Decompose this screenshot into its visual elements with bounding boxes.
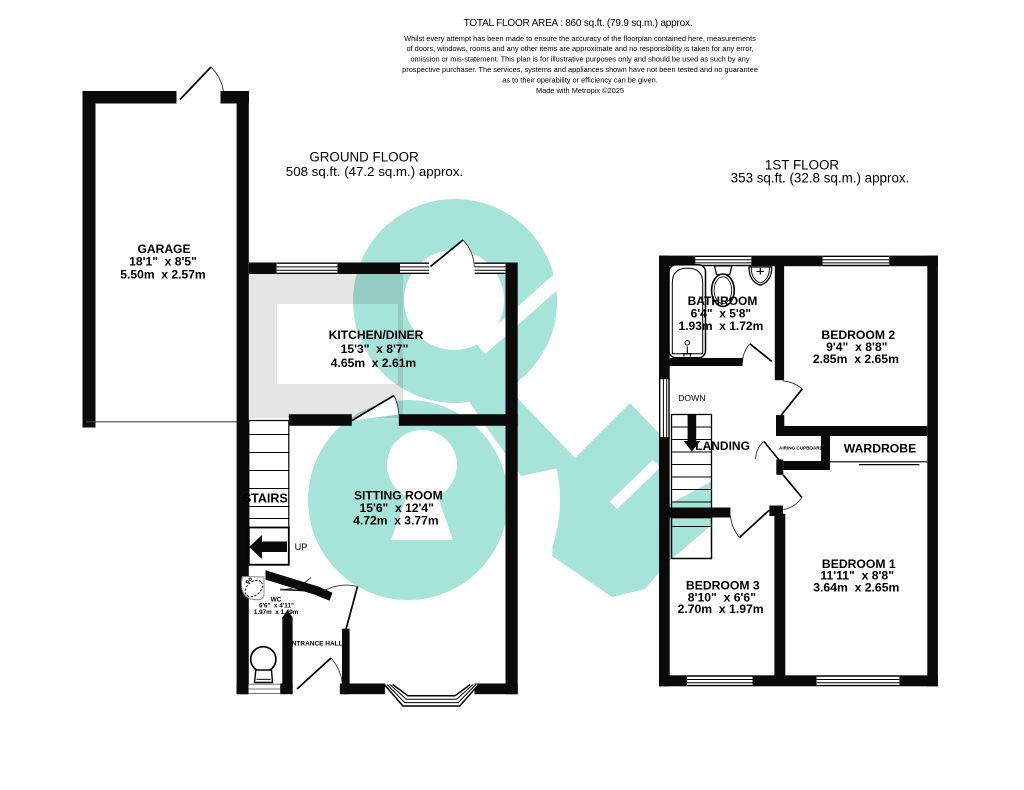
svg-text:508 sq.ft. (47.2 sq.m.) approx: 508 sq.ft. (47.2 sq.m.) approx. xyxy=(286,164,463,179)
svg-text:AIRING CUPBOARD: AIRING CUPBOARD xyxy=(779,446,824,451)
svg-text:2.70m x 1.97m: 2.70m x 1.97m xyxy=(678,602,764,616)
svg-text:GARAGE: GARAGE xyxy=(137,242,190,256)
svg-text:2.85m x 2.65m: 2.85m x 2.65m xyxy=(813,352,899,366)
svg-text:DOWN: DOWN xyxy=(678,393,705,403)
svg-text:1.97m x 1.49m: 1.97m x 1.49m xyxy=(254,609,299,616)
svg-text:TOTAL FLOOR AREA : 860 sq.ft.: TOTAL FLOOR AREA : 860 sq.ft. (79.9 sq.m… xyxy=(464,18,693,29)
svg-text:KITCHEN/DINER: KITCHEN/DINER xyxy=(329,328,424,342)
svg-text:15'3" x 8'7": 15'3" x 8'7" xyxy=(341,342,409,356)
svg-text:4.65m x 2.61m: 4.65m x 2.61m xyxy=(331,356,416,370)
svg-text:Made with Metropix ©2025: Made with Metropix ©2025 xyxy=(536,86,624,95)
svg-text:of doors, windows, rooms and a: of doors, windows, rooms and any other i… xyxy=(406,44,753,53)
svg-text:353 sq.ft. (32.8 sq.m.) approx: 353 sq.ft. (32.8 sq.m.) approx. xyxy=(731,171,910,186)
svg-text:as to their operability or eff: as to their operability or efficiency ca… xyxy=(502,75,658,84)
svg-text:ENTRANCE HALL: ENTRANCE HALL xyxy=(287,641,342,648)
svg-text:3.64m x 2.65m: 3.64m x 2.65m xyxy=(813,580,899,594)
svg-text:omission or mis-statement. Thi: omission or mis-statement. This plan is … xyxy=(410,55,749,64)
svg-text:1.93m x 1.72m: 1.93m x 1.72m xyxy=(679,319,764,333)
svg-text:18'1" x 8'5": 18'1" x 8'5" xyxy=(129,255,197,269)
svg-text:Whilst every attempt has been: Whilst every attempt has been made to en… xyxy=(404,34,756,43)
svg-text:GROUND FLOOR: GROUND FLOOR xyxy=(309,150,419,165)
svg-text:4.72m x 3.77m: 4.72m x 3.77m xyxy=(353,514,438,528)
svg-text:5.50m x 2.57m: 5.50m x 2.57m xyxy=(120,268,205,282)
svg-text:WARDROBE: WARDROBE xyxy=(844,441,916,455)
svg-text:STAIRS: STAIRS xyxy=(243,491,288,505)
svg-text:prospective purchaser. The ser: prospective purchaser. The services, sys… xyxy=(402,65,758,74)
svg-text:UP: UP xyxy=(295,542,308,552)
svg-text:LANDING: LANDING xyxy=(695,439,750,453)
